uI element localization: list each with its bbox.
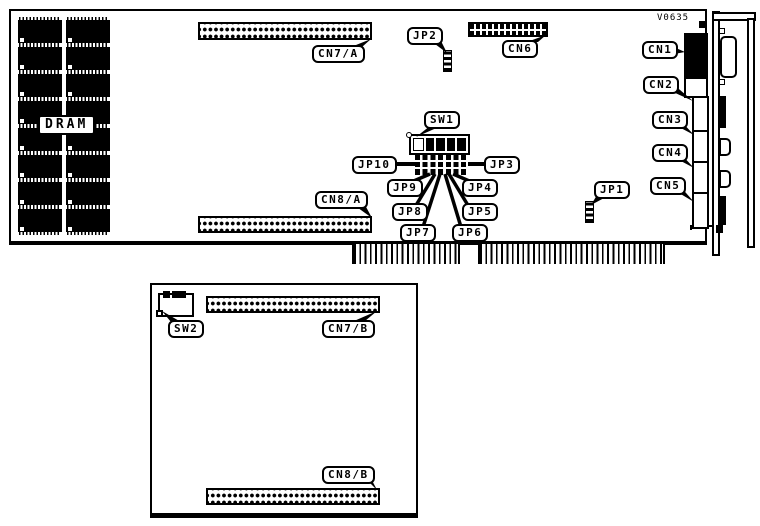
- label-jp6: JP6: [452, 224, 488, 242]
- label-jp10: JP10: [352, 156, 397, 174]
- label-sw1: SW1: [424, 111, 460, 129]
- label-cn1: CN1: [642, 41, 678, 59]
- label-jp2: JP2: [407, 27, 443, 45]
- label-jp4: JP4: [462, 179, 498, 197]
- label-jp7: JP7: [400, 224, 436, 242]
- label-cn8a: CN8/A: [315, 191, 368, 209]
- label-jp5: JP5: [462, 203, 498, 221]
- label-jp3: JP3: [484, 156, 520, 174]
- label-jp9: JP9: [387, 179, 423, 197]
- label-sw2: SW2: [168, 320, 204, 338]
- label-cn3: CN3: [652, 111, 688, 129]
- label-cn5: CN5: [650, 177, 686, 195]
- label-jp1: JP1: [594, 181, 630, 199]
- label-cn7b: CN7/B: [322, 320, 375, 338]
- label-cn4: CN4: [652, 144, 688, 162]
- label-cn2: CN2: [643, 76, 679, 94]
- version-text: V0635: [657, 13, 689, 23]
- label-jp8: JP8: [392, 203, 428, 221]
- dram-label: DRAM: [38, 115, 95, 135]
- label-cn7a: CN7/A: [312, 45, 365, 63]
- label-cn8b: CN8/B: [322, 466, 375, 484]
- card-layout-diagram: DRAM: [0, 0, 760, 526]
- label-cn6: CN6: [502, 40, 538, 58]
